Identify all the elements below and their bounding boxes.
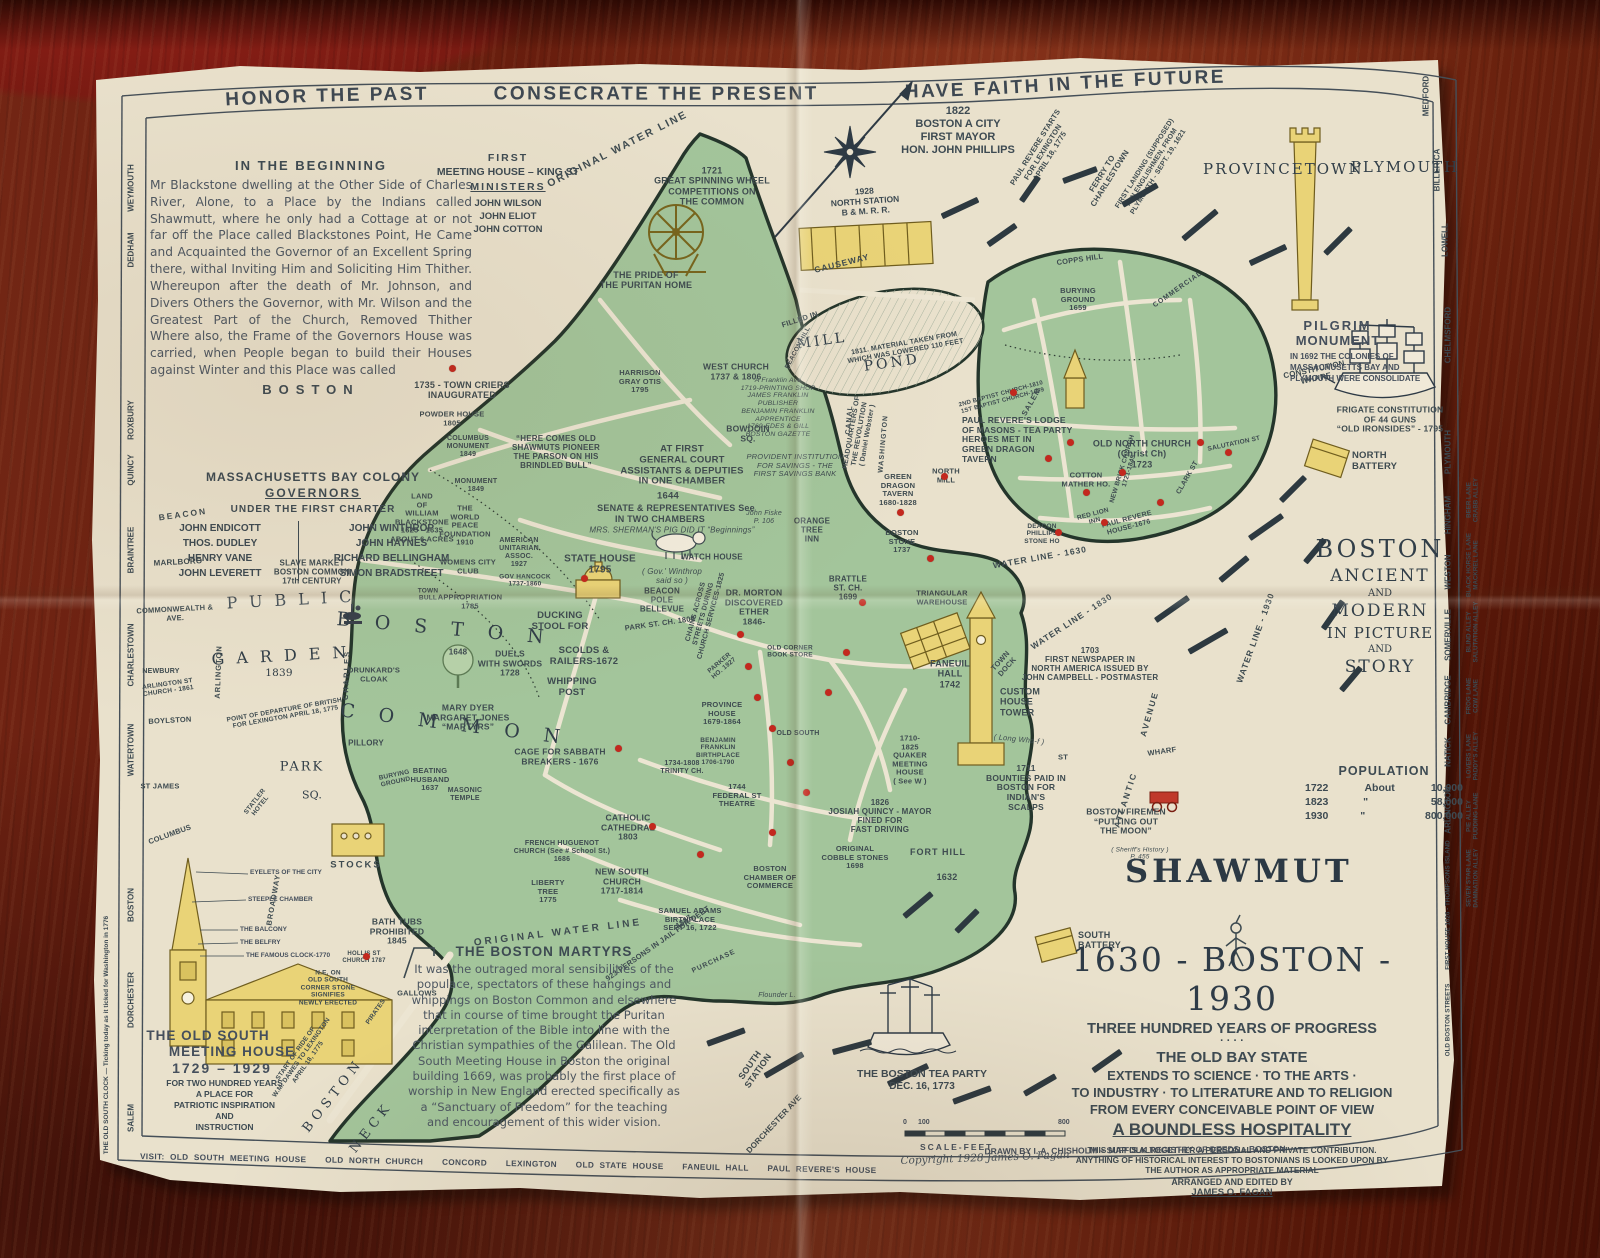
map-label: OLD NORTH CHURCH (Christ Ch) 1723 <box>1093 439 1191 470</box>
margin-town-label: BRAINTREE <box>126 527 135 574</box>
map-label: NEW SOUTH CHURCH 1717-1814 <box>595 867 649 896</box>
minister-name: JOHN WILSON <box>408 198 608 209</box>
church-callout: STEEPLE CHAMBER <box>248 896 313 903</box>
map-label: 1839 <box>265 668 293 680</box>
governors-block: MASSACHUSETTS BAY COLONY GOVERNORS UNDER… <box>148 470 478 581</box>
map-label: BEACON POLE BELLEVUE <box>640 586 684 613</box>
historic-site-dot <box>363 953 370 960</box>
minister-name: JOHN COTTON <box>408 224 608 235</box>
map-label: STATE HOUSE 1795 <box>564 554 636 577</box>
old-south-b3: PATRIOTIC INSPIRATION <box>132 1100 317 1110</box>
scale-800: 800 <box>1058 1119 1070 1126</box>
map-label: PARK ST. CH. 1809 <box>624 615 695 633</box>
wharf-icon <box>1323 226 1353 256</box>
map-label: NECK <box>348 1100 397 1157</box>
map-label: DUELS WITH SWORDS 1728 <box>478 649 543 678</box>
historic-site-dot <box>897 509 904 516</box>
old-south-years: 1729 – 1929 <box>142 1060 302 1076</box>
margin-town-label: CAMBRIDGE <box>1443 675 1452 724</box>
map-label: GARDEN <box>211 643 359 669</box>
first-meeting-l3: MINISTERS <box>408 181 608 193</box>
boston-ancient-modern-block: BOSTON ANCIENT AND MODERN IN PICTURE AND… <box>1300 535 1460 677</box>
map-label: NEWBURY <box>142 668 179 676</box>
map-label: PARK <box>280 761 324 776</box>
map-label: BRATTLE ST. CH. 1699 <box>829 574 867 601</box>
title-author: JAMES O. FAGAN <box>1032 1187 1432 1198</box>
historic-site-dot <box>649 823 656 830</box>
governors-line1: MASSACHUSETTS BAY COLONY <box>148 470 478 484</box>
map-label: ARLINGTON <box>214 645 224 699</box>
historic-site-dot <box>615 745 622 752</box>
map-label: SCOLDS & RAILERS-1672 <box>550 646 618 668</box>
church-callout: EYELETS OF THE CITY <box>250 869 322 876</box>
map-label: BOSTON FIREMEN “PUTTING OUT THE MOON” <box>1086 807 1166 836</box>
map-label: CAGE FOR SABBATH BREAKERS - 1676 <box>514 747 605 766</box>
provincetown-label: PROVINCETOWN <box>1203 160 1348 178</box>
margin-lane-label: LOVERS LANE PADDY'S ALLEY <box>1466 732 1481 781</box>
map-label: FORT HILL <box>910 847 966 857</box>
margin-town-label: QUINCY <box>126 454 135 485</box>
map-label: ORIGINAL COBBLE STONES 1698 <box>821 845 888 871</box>
photo-of-vintage-boston-map: HONOR THE PAST CONSECRATE THE PRESENT HA… <box>0 0 1600 1258</box>
map-label: ORANGE TREE INN <box>794 516 830 543</box>
ancient-line: BOSTON <box>1300 535 1460 563</box>
map-label: 1826 JOSIAH QUINCY - MAYOR FINED FOR FAS… <box>828 798 931 834</box>
map-label: FANEUIL HALL 1742 <box>930 659 970 690</box>
wharf-icon <box>1249 244 1288 266</box>
mayor-l2: BOSTON A CITY <box>868 118 1048 130</box>
governor-name: JOHN ENDICOTT <box>148 521 292 536</box>
map-label: WATER LINE - 1830 <box>1029 592 1114 652</box>
title-l4: EXTENDS TO SCIENCE · TO THE ARTS · <box>1032 1068 1432 1083</box>
wharf-icon <box>1181 209 1219 242</box>
title-l3: THE OLD BAY STATE <box>1032 1049 1432 1066</box>
title-s4: ARRANGED AND EDITED BY <box>1032 1177 1432 1187</box>
map-label: DRUNKARD'S CLOAK <box>348 666 400 683</box>
map-label: CAUSEWAY <box>813 252 870 275</box>
map-label: TOWN DOCK <box>990 650 1018 679</box>
pilgrim-t1: PILGRIM <box>1295 318 1380 333</box>
historic-site-dot <box>843 649 850 656</box>
historic-site-dot <box>803 789 810 796</box>
margin-town-label: PLYMOUTH <box>1443 430 1452 474</box>
pop-year: 1823 <box>1305 796 1328 808</box>
pop-value: 800,000 <box>1425 810 1463 822</box>
old-south-t1: THE OLD SOUTH <box>128 1028 288 1043</box>
mayor-name: HON. JOHN PHILLIPS <box>868 144 1048 156</box>
governor-name: HENRY VANE <box>148 551 292 566</box>
historic-site-dot <box>927 555 934 562</box>
map-label: AVENUE <box>1139 690 1161 738</box>
map-label: CUSTOM HOUSE TOWER <box>1000 687 1040 718</box>
beginning-footer: BOSTON <box>150 382 472 397</box>
map-label: PURCHASE <box>691 948 737 975</box>
map-label: ST JAMES <box>140 783 179 792</box>
boston-martyrs-block: THE BOSTON MARTYRS It was the outraged m… <box>408 944 680 1130</box>
pop-year: 1930 <box>1305 810 1328 822</box>
first-meeting-l1: FIRST <box>408 152 608 164</box>
title-dots: · · · · <box>1032 1037 1432 1046</box>
historic-site-dot <box>1119 469 1126 476</box>
map-label: OLD SOUTH <box>776 730 819 738</box>
governor-name: JOHN HAYNES <box>305 536 478 551</box>
map-label: STOCKS <box>330 861 381 872</box>
church-callout: THE BALCONY <box>240 926 287 933</box>
title-block: 1630 - BOSTON - 1930 THREE HUNDRED YEARS… <box>1032 940 1432 1198</box>
map-label: FRENCH HUGUENOT CHURCH (See # School St.… <box>514 840 610 864</box>
old-south-b5: INSTRUCTION <box>132 1122 317 1132</box>
map-label: FILLED IN <box>781 310 819 330</box>
map-label: SAMUEL ADAMS BIRTHPLACE SEPT 16, 1722 <box>658 907 721 933</box>
map-label: 1734-1808 TRINITY CH. <box>660 760 703 776</box>
scale-zero: 0 <box>903 1119 907 1126</box>
old-south-b2: A PLACE FOR <box>132 1089 317 1099</box>
wharf-icon <box>941 197 980 219</box>
title-main: 1630 - BOSTON - 1930 <box>1032 940 1432 1018</box>
wharf-icon <box>832 1039 872 1055</box>
map-label: TOWN BULL <box>418 588 439 603</box>
margin-town-label: DEDHAM <box>126 232 135 267</box>
margin-town-label: WATERTOWN <box>126 724 135 777</box>
pop-value: 10,000 <box>1431 782 1463 794</box>
map-label: John Fiske P. 106 <box>746 510 782 526</box>
map-label: PARKER HO. 1927 <box>706 651 738 681</box>
tea-party-caption: THE BOSTON TEA PARTY DEC. 16, 1773 <box>822 1068 1022 1092</box>
pop-value: 58,000 <box>1431 796 1463 808</box>
church-callout: THE FAMOUS CLOCK-1770 <box>246 952 330 959</box>
map-label: ( Gov.' Winthrop said so ) <box>642 567 702 585</box>
pop-year: 1722 <box>1305 782 1328 794</box>
map-label: APPROPRIATION 1785 <box>438 593 503 610</box>
population-block: POPULATION 1722 About 10,000 1823 " 58,0… <box>1305 764 1463 822</box>
map-label: WHIPPING POST <box>547 677 597 699</box>
governor-name: JOHN LEVERETT <box>148 566 292 581</box>
margin-lane-label: PIE ALLEY PUDDING LANE <box>1466 792 1481 839</box>
ancient-line: ANCIENT <box>1300 566 1460 586</box>
map-label: A Franklin Ave 1719-PRINTING SHOP JAMES … <box>741 377 816 439</box>
map-label: COLUMBUS MONUMENT 1849 <box>447 435 490 459</box>
margin-town-label: OLD BOSTON STREETS <box>1444 984 1451 1057</box>
map-label: BATH TUBS PROHIBITED 1845 <box>370 917 424 946</box>
governor-name: RICHARD BELLINGHAM <box>305 551 478 566</box>
title-s3: THE AUTHOR AS APPROPRIATE MATERIAL <box>1032 1165 1432 1175</box>
title-s2: ANYTHING OF HISTORICAL INTEREST TO BOSTO… <box>1032 1155 1432 1165</box>
wharf-icon <box>902 891 933 919</box>
plymouth-label: PLYMOUTH <box>1350 158 1460 176</box>
margin-lane-label: BLIND ALLEY SALUTATION ALLEY <box>1466 602 1481 663</box>
map-label: WATER LINE - 1630 <box>992 545 1087 571</box>
map-label: SQ. <box>302 790 322 803</box>
map-label: WHARF <box>1147 746 1177 758</box>
map-label: CATHOLIC CATHEDRAL 1803 <box>601 813 655 842</box>
map-label: WATER LINE - 1930 <box>1235 592 1277 685</box>
map-label: AT FIRST GENERAL COURT ASSISTANTS & DEPU… <box>620 444 743 487</box>
map-label: SOUTH STATION <box>734 1046 773 1090</box>
pilgrim-t2: MONUMENT <box>1288 333 1388 348</box>
map-label: HARRISON GRAY OTIS 1795 <box>619 369 661 395</box>
minister-name: JOHN ELIOT <box>408 211 608 222</box>
wharf-icon <box>1248 513 1284 541</box>
historic-site-dot <box>581 575 588 582</box>
map-label: AMERICAN UNITARIAN ASSOC. 1927 <box>499 537 539 569</box>
pilgrim-note: IN 1692 THE COLONIES OF MASSACHUSETTS BA… <box>1290 352 1460 384</box>
pop-qual: About <box>1364 782 1394 794</box>
governors-line3: UNDER THE FIRST CHARTER <box>148 504 478 515</box>
margin-town-label: WEYMOUTH <box>126 164 135 212</box>
map-label: COMMONWEALTH & AVE. <box>136 603 214 624</box>
map-label: N.E. ON OLD SOUTH CORNER STONE SIGNIFIES… <box>299 969 357 1006</box>
map-label: BEATING HUSBAND 1637 <box>411 767 450 793</box>
margin-town-label: NATICK <box>1443 737 1452 767</box>
map-label: 1648 <box>449 647 468 656</box>
map-label: MASONIC TEMPLE <box>448 787 482 803</box>
historic-site-dot <box>941 473 948 480</box>
governor-name: SIMON BRADSTREET <box>305 566 478 581</box>
first-meeting-l2: MEETING HOUSE – KING ST <box>408 166 608 178</box>
historic-site-dot <box>1067 439 1074 446</box>
old-south-b1: FOR TWO HUNDRED YEARS <box>132 1078 317 1088</box>
title-l6: FROM EVERY CONCEIVABLE POINT OF VIEW <box>1032 1102 1432 1117</box>
governor-name: JOHN WINTHROP <box>305 521 478 536</box>
margin-town-label: CHARLESTOWN <box>126 624 135 687</box>
historic-site-dot <box>1055 529 1062 536</box>
martyrs-title: THE BOSTON MARTYRS <box>408 944 680 959</box>
margin-lane-label: FROG LANE COW LANE <box>1466 678 1481 714</box>
map-label: MRS. SHERMAN'S PIG DID IT “Beginnings” <box>589 525 754 534</box>
title-l7: A BOUNDLESS HOSPITALITY <box>1032 1120 1432 1140</box>
pop-qual: " <box>1363 796 1368 808</box>
map-label: BURYING GROUND <box>378 769 412 790</box>
old-south-b4: AND <box>132 1111 317 1121</box>
ancient-line: IN PICTURE <box>1300 624 1460 642</box>
margin-town-label: BOSTON <box>126 888 135 922</box>
map-label: THE PRIDE OF THE PURITAN HOME <box>600 270 693 291</box>
map-label: TRIANGULAR WAREHOUSE <box>916 589 968 606</box>
map-label: 1744 FEDERAL ST THEATRE <box>713 783 762 809</box>
historic-site-dot <box>787 759 794 766</box>
historic-site-dot <box>1045 455 1052 462</box>
map-label: PROVIDENT INSTITUTION FOR SAVINGS - THE … <box>746 453 843 479</box>
map-label: 1703 FIRST NEWSPAPER IN NORTH AMERICA IS… <box>1022 646 1159 682</box>
ancient-line: STORY <box>1300 657 1460 677</box>
map-label: PILLORY <box>348 738 384 747</box>
map-label: 1710- 1825 QUAKER MEETING HOUSE ( See W … <box>892 734 928 785</box>
map-label: GOV HANCOCK 1737-1860 <box>499 574 551 589</box>
margin-town-label: MEDFORD <box>1421 76 1430 116</box>
map-label: DORCHESTER AVE <box>745 1093 804 1155</box>
map-label: DR. MORTON DISCOVERED ETHER 1846- <box>725 589 783 628</box>
map-label: BOSTON CHAMBER OF COMMERCE <box>744 865 797 891</box>
wharf-icon <box>1187 627 1228 654</box>
map-label: 1711 BOUNTIES PAID IN BOSTON FOR INDIAN'… <box>986 764 1066 812</box>
map-label: ARLINGTON ST CHURCH - 1861 <box>142 677 195 699</box>
governor-name: THOS. DUDLEY <box>148 536 292 551</box>
historic-site-dot <box>825 689 832 696</box>
historic-site-dot <box>769 829 776 836</box>
map-label: PAUL REVERE'S LODGE OF MASONS - TEA PART… <box>962 416 1072 464</box>
map-label: BOYLSTON <box>148 716 192 727</box>
map-label: COPPS HILL <box>1056 252 1104 267</box>
shawmut-label: SHAWMUT <box>1125 852 1345 890</box>
wharf-icon <box>1279 475 1307 503</box>
margin-town-label: HINGHAM <box>1443 496 1452 534</box>
historic-site-dot <box>859 599 866 606</box>
margin-town-label: ROXBURY <box>126 400 135 440</box>
map-label: POWDER HOUSE 1805 <box>420 410 485 427</box>
wharf-icon <box>954 908 979 933</box>
map-label: FRIGATE CONSTITUTION OF 44 GUNS “OLD IRO… <box>1337 405 1444 434</box>
map-label: POINT OF DEPARTURE OF BRITISH FOR LEXING… <box>226 697 344 732</box>
map-label: GREEN DRAGON TAVERN 1680-1828 <box>879 473 917 507</box>
margin-lane-label: BLACK HORSE LANE MACKREL LANE <box>1466 533 1481 597</box>
historic-site-dot <box>1101 519 1108 526</box>
map-label: OLD CORNER BOOK STORE <box>767 645 813 660</box>
mayor-l3: FIRST MAYOR <box>868 131 1048 143</box>
map-label: 1632 <box>937 872 958 882</box>
old-south-t2: MEETING HOUSE <box>152 1044 312 1059</box>
map-label: NORTH BATTERY <box>1352 451 1397 473</box>
wharf-icon <box>706 1027 746 1046</box>
map-label: LIBERTY TREE 1775 <box>531 879 564 905</box>
old-south-clock-note: THE OLD SOUTH CLOCK — Ticking today as i… <box>103 916 111 1154</box>
map-label: WASHINGTON <box>877 415 890 474</box>
wharf-icon <box>1154 595 1190 623</box>
historic-site-dot <box>1157 499 1164 506</box>
pop-qual: " <box>1360 810 1365 822</box>
historic-site-dot <box>1010 389 1017 396</box>
map-label: MARY DYER MARGARET JONES “MARTYRS” <box>426 703 509 732</box>
map-label: 1644 <box>657 492 679 503</box>
historic-site-dot <box>697 851 704 858</box>
map-label: WATCH HOUSE <box>681 552 743 561</box>
margin-lane-label: SEVEN STAR LANE DAMNATION ALLEY <box>1466 848 1481 907</box>
tea-party-date: DEC. 16, 1773 <box>822 1081 1022 1092</box>
map-label: COMMERCIAL <box>1152 270 1204 310</box>
historic-site-dot <box>754 694 761 701</box>
historic-site-dot <box>769 725 776 732</box>
wharf-icon <box>986 223 1017 247</box>
map-label: ST <box>1058 754 1068 763</box>
historic-site-dot <box>745 663 752 670</box>
map-label: IN TWO CHAMBERS <box>615 514 705 524</box>
margin-town-label: FIRST HOUSE 1626 - THOMPSONS ISLAND <box>1444 840 1451 969</box>
governors-line2: GOVERNORS <box>148 486 478 500</box>
map-label: SALUTATION ST <box>1207 435 1261 453</box>
map-label: PROVINCE HOUSE 1679-1864 <box>702 701 743 727</box>
map-label: “HERE COMES OLD SHAWMUTS PIONEER THE PAR… <box>512 434 600 470</box>
ancient-line: AND <box>1300 588 1460 599</box>
map-label: COTTON MATHER HO. <box>1062 471 1111 488</box>
scale-100: 100 <box>918 1119 930 1126</box>
map-label: PIRATES <box>365 998 388 1026</box>
first-meeting-house-block: FIRST MEETING HOUSE – KING ST MINISTERS … <box>408 152 608 235</box>
wharf-icon <box>1218 555 1249 583</box>
map-label: SENATE & REPRESENTATIVES See <box>597 503 755 513</box>
map-label: 1721 GREAT SPINNING WHEEL COMPETITIONS O… <box>654 166 770 207</box>
tea-party-l1: THE BOSTON TEA PARTY <box>822 1068 1022 1080</box>
historic-site-dot <box>1225 449 1232 456</box>
margin-town-label: LOWELL <box>1440 223 1449 257</box>
mayor-year: 1822 <box>868 105 1048 117</box>
margin-town-label: DORCHESTER <box>126 972 135 1028</box>
title-l5: TO INDUSTRY · TO LITERATURE AND TO RELIG… <box>1032 1085 1432 1100</box>
map-label: COLUMBUS <box>147 823 192 846</box>
map-label: BURYING GROUND 1659 <box>1060 287 1096 313</box>
population-title: POPULATION <box>1305 764 1463 778</box>
map-label: STATLER HOTEL <box>243 787 273 820</box>
map-label: BOSTON STONE 1737 <box>885 529 918 555</box>
historic-site-dot <box>1197 439 1204 446</box>
margin-lane-label: BEER LANE CRABB ALLEY <box>1466 478 1481 522</box>
map-label: Flounder L. <box>758 992 796 1000</box>
map-label: ( Long Wha-f ) <box>993 733 1044 747</box>
map-label: DUCKING STOOL FOR <box>532 611 589 633</box>
martyrs-text: It was the outraged moral sensibilities … <box>408 962 680 1130</box>
church-callout: THE BELFRY <box>240 939 281 946</box>
ancient-line: AND <box>1300 644 1460 655</box>
historic-site-dot <box>737 631 744 638</box>
historic-site-dot <box>1083 489 1090 496</box>
first-mayor-block: 1822 BOSTON A CITY FIRST MAYOR HON. JOHN… <box>868 105 1048 156</box>
ancient-line: MODERN <box>1300 601 1460 621</box>
